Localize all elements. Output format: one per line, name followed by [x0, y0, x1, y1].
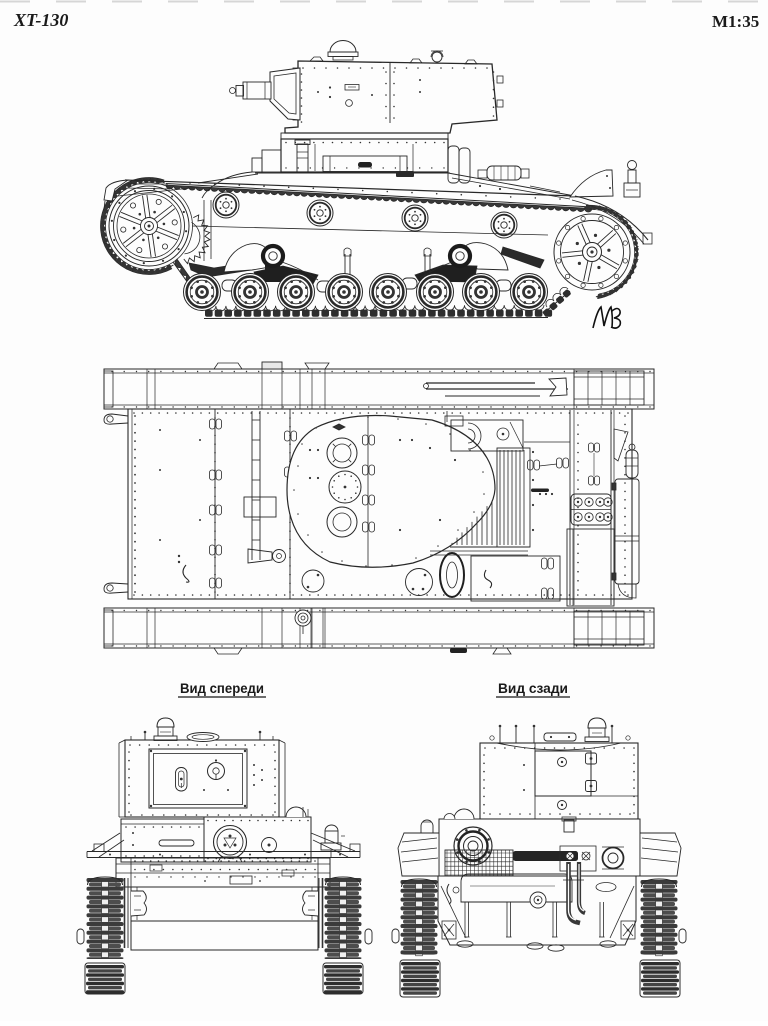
svg-text:M1:35: M1:35 [712, 12, 759, 31]
svg-text:XT-130: XT-130 [13, 10, 68, 30]
svg-text:Вид спереди: Вид спереди [180, 681, 264, 696]
svg-text:Вид сзади: Вид сзади [498, 681, 568, 696]
